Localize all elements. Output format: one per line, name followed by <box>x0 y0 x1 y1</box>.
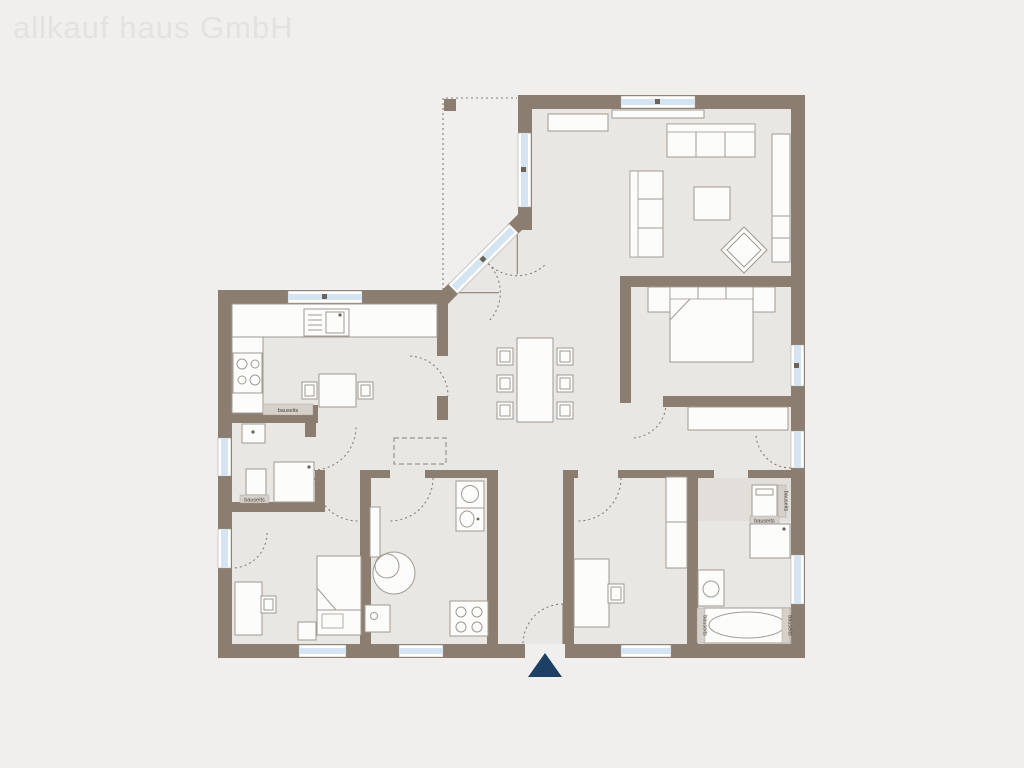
fridge <box>274 462 314 502</box>
svg-text:bauseits: bauseits <box>783 491 789 512</box>
nightstand <box>298 622 316 640</box>
wall-unit <box>772 134 790 262</box>
utility-window <box>218 438 231 476</box>
living-room-west-window <box>518 133 531 207</box>
svg-text:bauseits: bauseits <box>787 615 793 636</box>
washer <box>752 485 777 517</box>
floor-plan-page: allkauf haus GmbH <box>0 0 1024 768</box>
sofa-three-seat <box>667 124 755 157</box>
nightstand-left <box>648 287 670 312</box>
kitchen-table <box>319 374 356 407</box>
wardrobe <box>688 407 788 430</box>
washer-label-horizontal: bauseits <box>750 516 779 525</box>
bathroom2-east-window <box>791 555 804 604</box>
sofa-two-seat <box>630 171 663 257</box>
office-south-window <box>621 645 671 657</box>
child-room-south-window <box>299 645 346 657</box>
child-room-west-window <box>218 529 231 568</box>
terrace-post <box>444 99 456 111</box>
coffee-table <box>694 187 730 220</box>
desk <box>235 582 262 635</box>
dressing-east-window <box>791 431 804 468</box>
dining-table <box>517 338 553 422</box>
svg-text:bauseits: bauseits <box>702 615 708 636</box>
radiator <box>370 507 380 557</box>
four-burner-unit <box>450 601 488 636</box>
kitchen-window <box>288 291 362 303</box>
washbasin <box>456 481 484 508</box>
utility-sink <box>242 424 265 443</box>
kitchen-sink <box>304 309 349 336</box>
dryer <box>750 524 790 558</box>
fridge-niche-label: bauseits <box>263 404 313 415</box>
dining-area <box>497 338 573 422</box>
entrance-arrow-icon <box>528 653 562 677</box>
office-desk <box>574 559 609 627</box>
double-bed <box>670 287 753 362</box>
living-room-north-window <box>612 96 704 118</box>
floor-plan-drawing: bauseits bauseits <box>0 0 1024 768</box>
bathroom-south-window <box>399 645 443 657</box>
sideboard <box>548 114 608 131</box>
stool <box>365 605 390 632</box>
bathtub <box>704 608 791 643</box>
washbasin2 <box>698 570 724 606</box>
single-bed <box>317 556 361 635</box>
stove <box>233 353 262 393</box>
bedroom-east-window <box>791 345 804 386</box>
svg-text:bauseits: bauseits <box>244 498 265 504</box>
round-shower <box>373 552 415 594</box>
nightstand-right <box>753 287 775 312</box>
tall-cabinet <box>666 477 687 568</box>
svg-text:bauseits: bauseits <box>278 408 299 414</box>
toilet <box>456 508 484 531</box>
